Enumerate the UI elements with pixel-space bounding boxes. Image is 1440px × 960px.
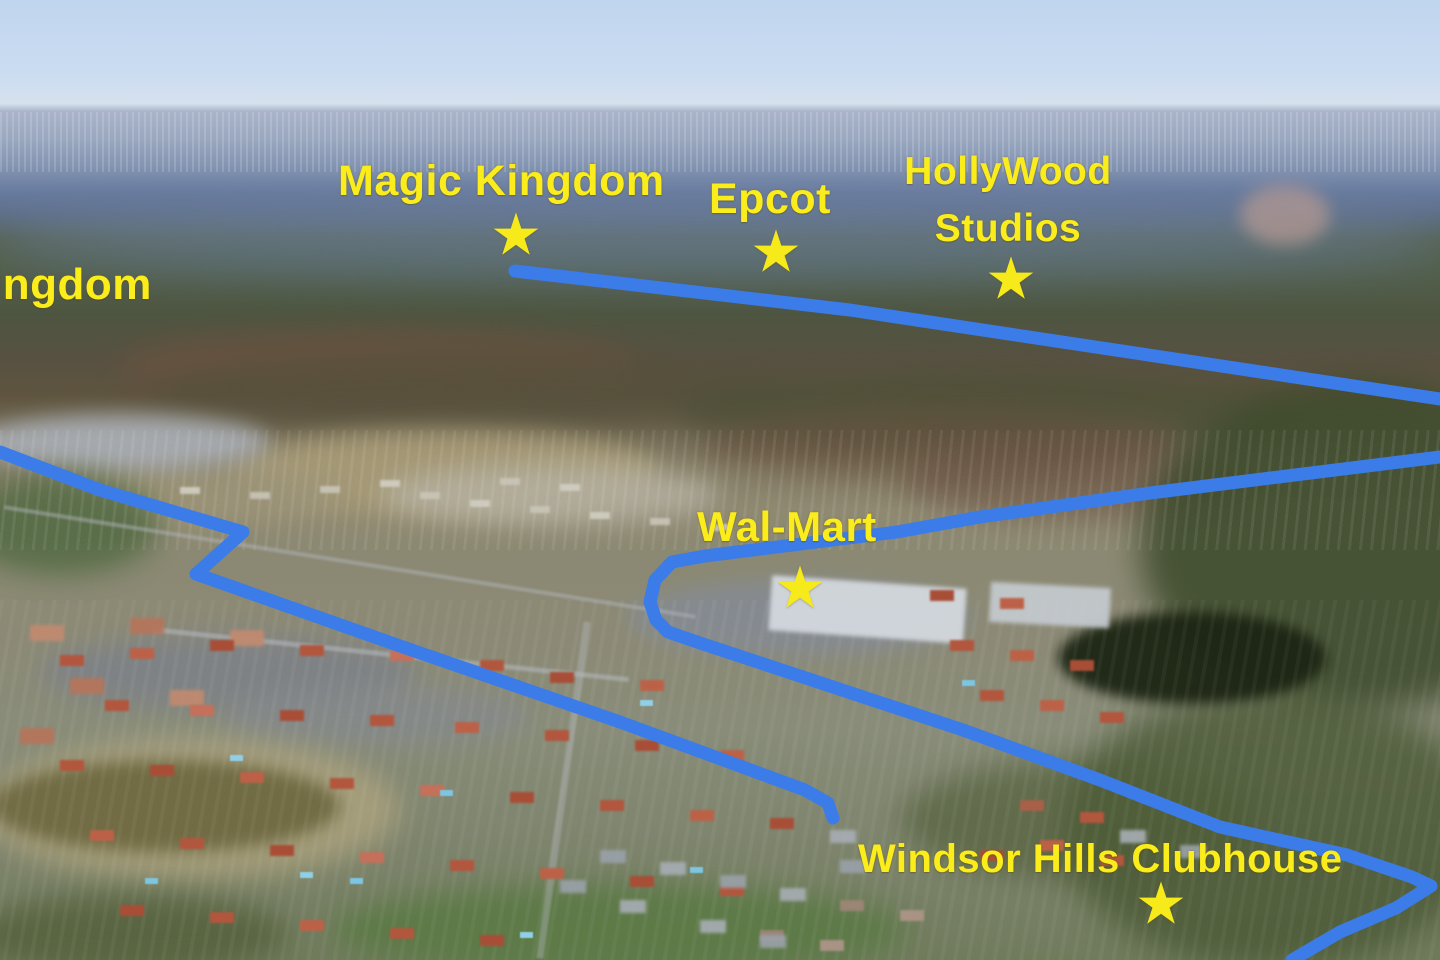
aerial-map: ★★★★★ ingdom Magic Kingdom Epcot HollyWo… xyxy=(0,0,1440,960)
label-windsor-hills-clubhouse: Windsor Hills Clubhouse xyxy=(858,837,1343,882)
route-north-to-parks xyxy=(515,271,1440,399)
routes-overlay xyxy=(0,0,1440,960)
label-hollywood-studios: HollyWood Studios xyxy=(876,143,1140,258)
label-walmart: Wal-Mart xyxy=(697,503,877,551)
label-hollywood-line1: HollyWood xyxy=(876,143,1140,200)
label-epcot: Epcot xyxy=(709,175,831,224)
label-magic-kingdom: Magic Kingdom xyxy=(338,157,665,206)
label-hollywood-line2: Studios xyxy=(876,200,1140,257)
label-animal-kingdom: ingdom xyxy=(0,260,152,310)
